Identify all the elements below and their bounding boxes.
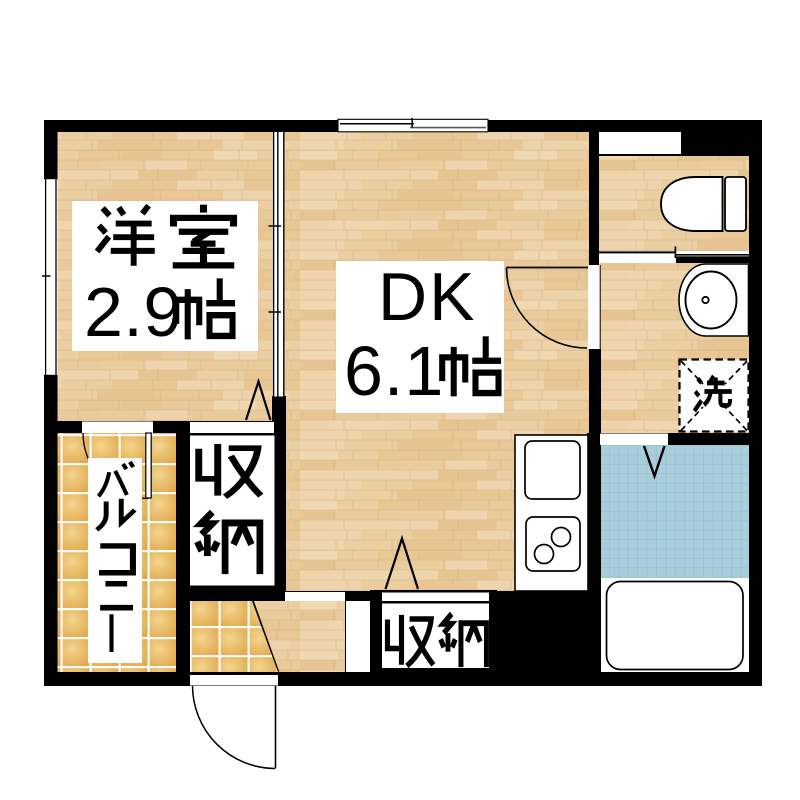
svg-text:6.1: 6.1 [344, 332, 444, 410]
svg-text:DK: DK [378, 259, 476, 335]
svg-text:2.9: 2.9 [84, 273, 183, 351]
